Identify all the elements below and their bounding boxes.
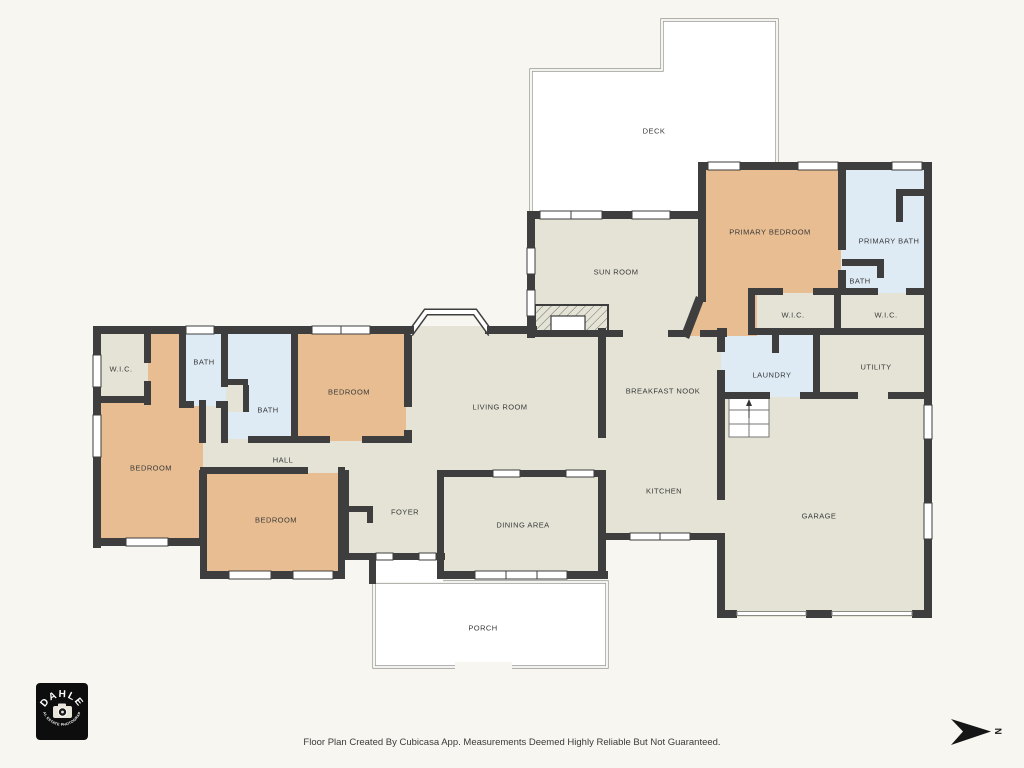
room-bedroom-left <box>96 400 203 545</box>
room-kitchen-nook <box>601 328 721 540</box>
bedroom-left-label: BEDROOM <box>130 464 172 473</box>
bedroom-lower-label: BEDROOM <box>255 516 297 525</box>
bath-upper-label: BATH <box>193 358 214 367</box>
room-bedroom-left-arm <box>148 331 183 403</box>
primary-bedroom-label: PRIMARY BEDROOM <box>729 228 811 237</box>
floor-plan: DECK SUN ROOM PRIMARY BEDROOM PRIMARY BA… <box>0 0 1024 768</box>
breakfast-nook-label: BREAKFAST NOOK <box>626 387 701 396</box>
dining-area-label: DINING AREA <box>496 521 549 530</box>
deck-label: DECK <box>643 127 666 136</box>
entry-alcove <box>374 559 443 582</box>
floor-plan-page: DECK SUN ROOM PRIMARY BEDROOM PRIMARY BA… <box>0 0 1024 768</box>
sun-room-label: SUN ROOM <box>594 268 639 277</box>
primary-bath-label: PRIMARY BATH <box>859 237 920 246</box>
primary-wic-1-label: W.I.C. <box>781 311 804 320</box>
room-bedroom-lower <box>203 473 343 576</box>
garage-stairs <box>729 396 769 437</box>
wic-left-label: W.I.C. <box>109 365 132 374</box>
utility-label: UTILITY <box>860 363 891 372</box>
foyer-label: FOYER <box>391 508 419 517</box>
room-bedroom-upper <box>295 331 406 441</box>
living-room-label: LIVING ROOM <box>473 403 528 412</box>
room-living <box>402 326 605 472</box>
kitchen-label: KITCHEN <box>646 487 682 496</box>
porch-label: PORCH <box>468 624 497 633</box>
fireplace <box>535 305 608 334</box>
primary-bath-wc-label: BATH <box>849 277 870 286</box>
bedroom-upper-label: BEDROOM <box>328 388 370 397</box>
room-laundry <box>721 331 818 397</box>
garage-label: GARAGE <box>802 512 837 521</box>
room-primary-bath <box>841 165 929 293</box>
laundry-label: LAUNDRY <box>753 371 792 380</box>
hall-label: HALL <box>273 456 294 465</box>
bath-lower-label: BATH <box>257 406 278 415</box>
north-label: N <box>993 728 1003 735</box>
primary-wic-2-label: W.I.C. <box>874 311 897 320</box>
footer-disclaimer: Floor Plan Created By Cubicasa App. Meas… <box>303 737 720 748</box>
